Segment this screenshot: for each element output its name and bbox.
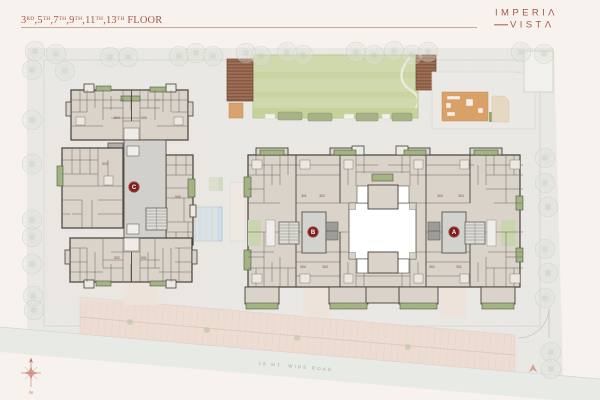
svg-text:303: 303 xyxy=(322,265,328,269)
svg-text:505: 505 xyxy=(141,116,147,120)
svg-text:303: 303 xyxy=(437,194,443,198)
svg-text:304: 304 xyxy=(300,265,306,269)
svg-text:B: B xyxy=(311,230,316,236)
svg-text:N: N xyxy=(29,390,32,395)
svg-text:302: 302 xyxy=(429,265,435,269)
svg-text:VISTΛ: VISTΛ xyxy=(510,20,554,31)
svg-text:301: 301 xyxy=(301,194,307,198)
svg-text:304: 304 xyxy=(458,194,464,198)
svg-text:302: 302 xyxy=(319,194,325,198)
svg-text:301: 301 xyxy=(456,265,462,269)
svg-text:506: 506 xyxy=(175,195,181,199)
svg-text:501: 501 xyxy=(141,256,147,260)
svg-text:C: C xyxy=(132,185,137,191)
svg-text:A: A xyxy=(452,230,457,236)
svg-text:IMPERIΛ: IMPERIΛ xyxy=(495,8,558,19)
svg-text:3RD,5TH,7TH,9TH,11TH,13TH FLOO: 3RD,5TH,7TH,9TH,11TH,13TH FLOOR xyxy=(21,15,162,26)
svg-text:502: 502 xyxy=(114,256,120,260)
svg-text:503: 503 xyxy=(102,162,108,166)
svg-text:504: 504 xyxy=(114,116,120,120)
